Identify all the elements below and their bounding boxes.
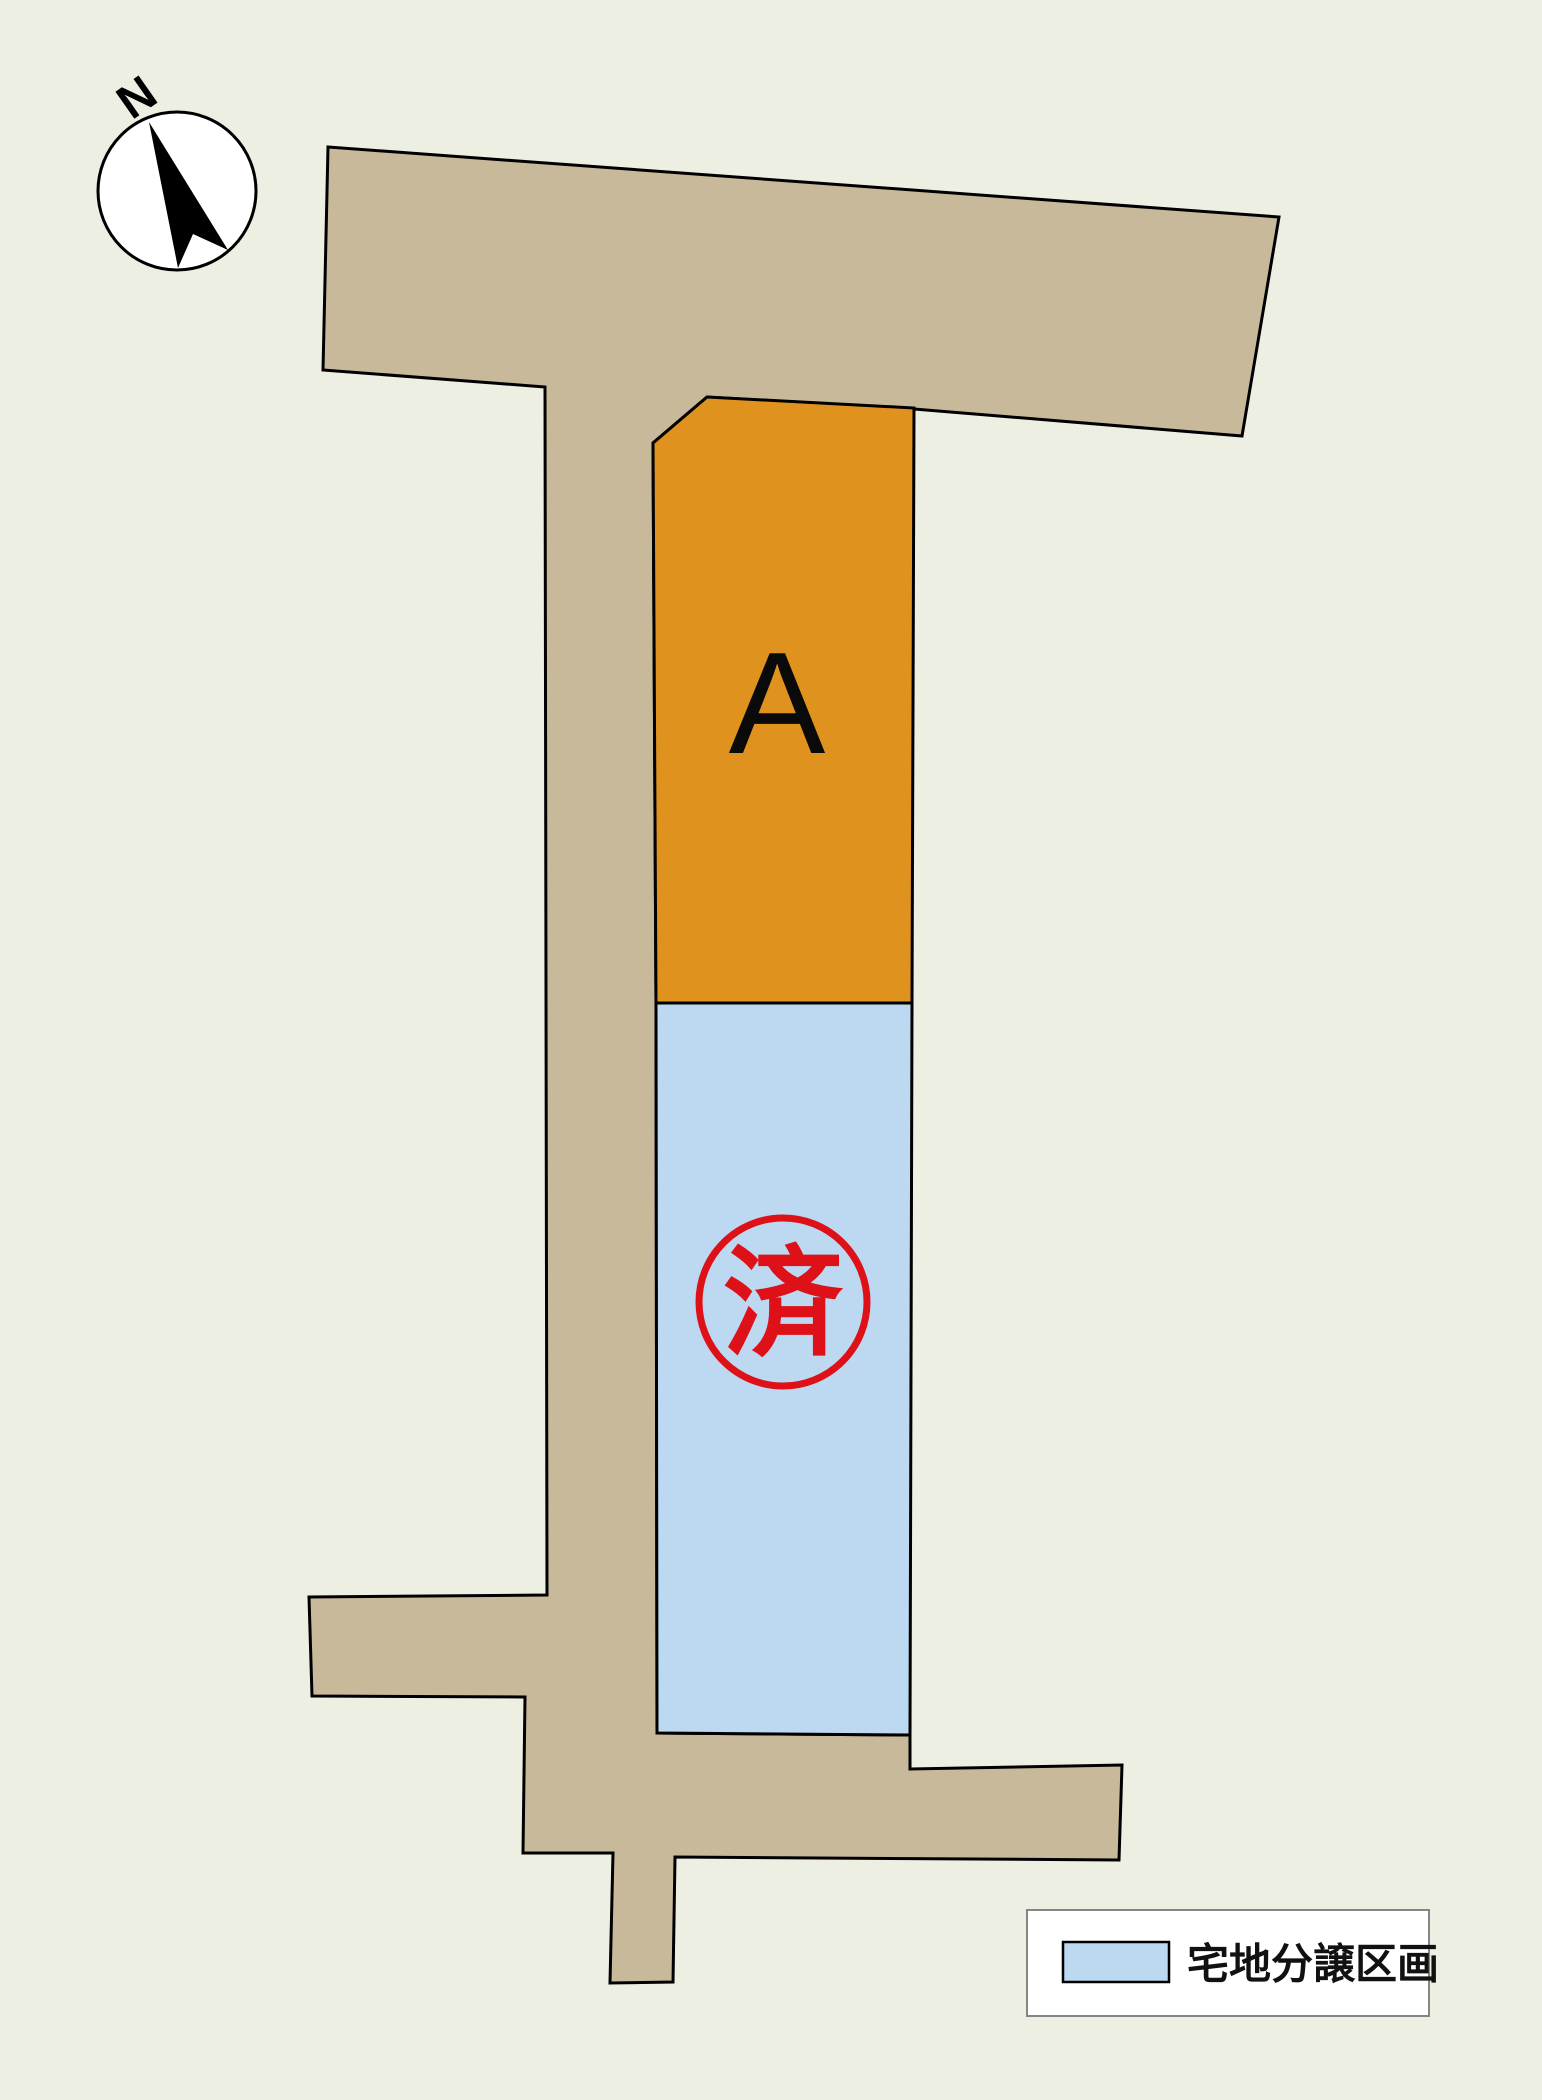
- legend-swatch: [1063, 1942, 1169, 1982]
- site-plan-svg: A 済 N 宅地分譲区画: [0, 0, 1542, 2100]
- site-plan: A 済 N 宅地分譲区画: [0, 0, 1542, 2100]
- legend: 宅地分譲区画: [1027, 1910, 1439, 2016]
- sold-stamp: 済: [699, 1218, 867, 1386]
- legend-label: 宅地分譲区画: [1187, 1941, 1439, 1988]
- lot-a-label: A: [729, 622, 826, 784]
- sold-stamp-label: 済: [723, 1237, 844, 1371]
